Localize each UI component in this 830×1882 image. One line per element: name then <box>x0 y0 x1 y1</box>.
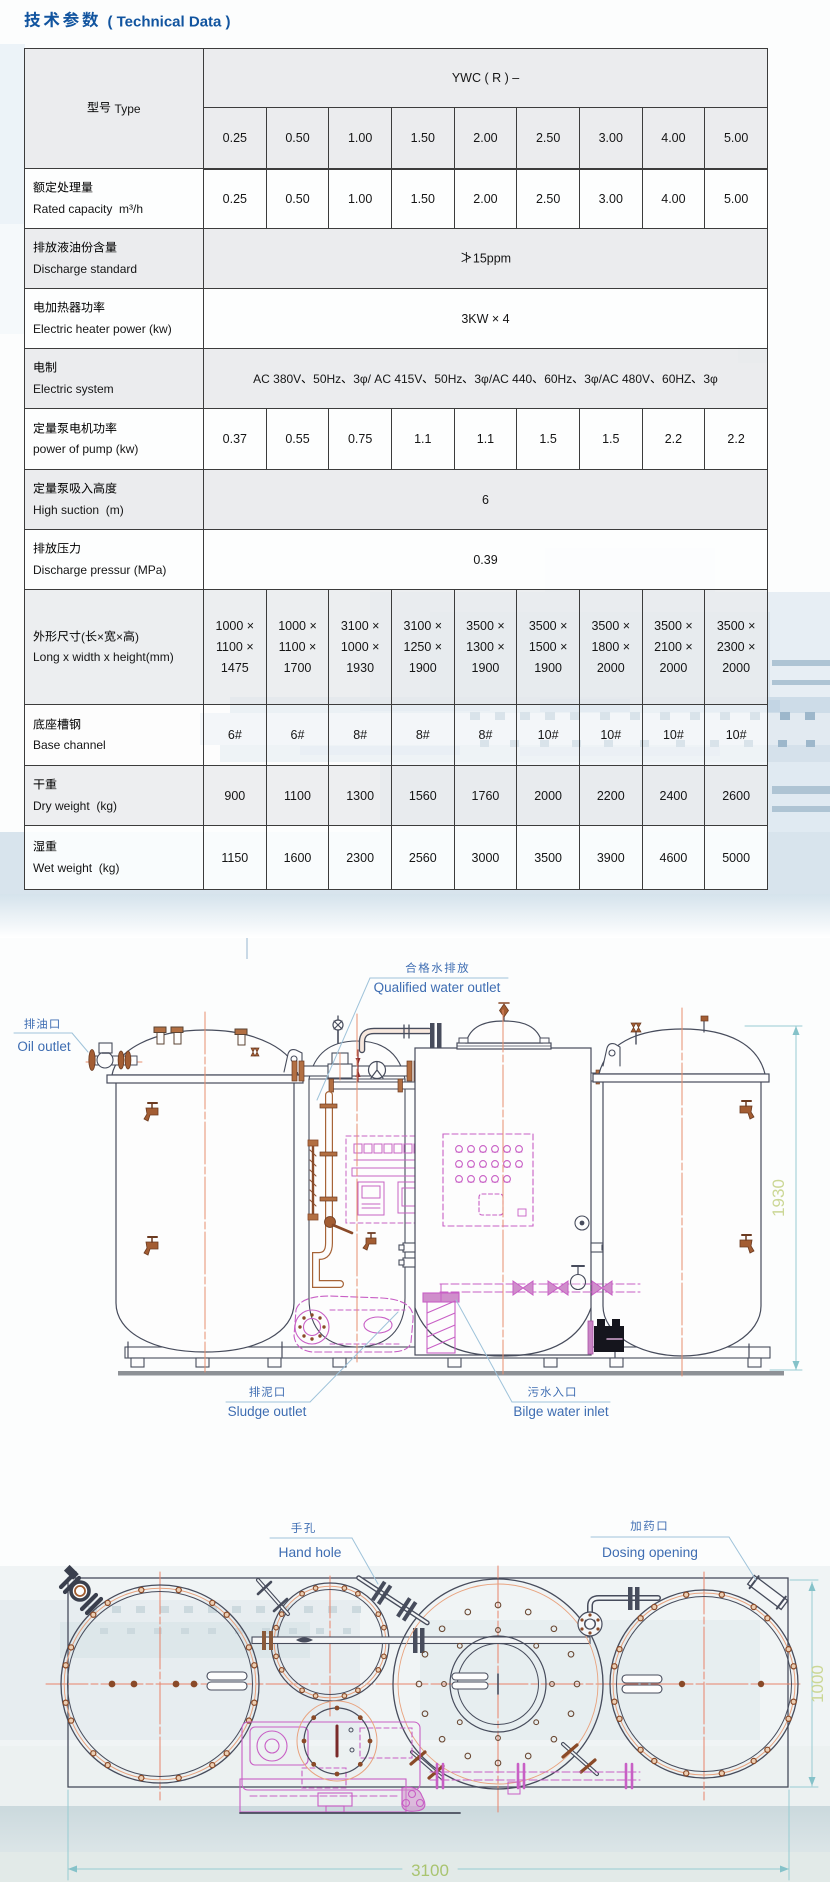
svg-text:Sludge outlet: Sludge outlet <box>228 1404 307 1419</box>
svg-text:Dosing opening: Dosing opening <box>602 1545 698 1560</box>
svg-text:Qualified water outlet: Qualified water outlet <box>374 980 501 995</box>
svg-text:3100: 3100 <box>411 1861 449 1880</box>
svg-text:Oil outlet: Oil outlet <box>17 1039 71 1054</box>
svg-text:Hand hole: Hand hole <box>279 1545 342 1560</box>
svg-text:1930: 1930 <box>769 1179 788 1217</box>
svg-text:1000: 1000 <box>808 1665 827 1703</box>
svg-text:Bilge water inlet: Bilge water inlet <box>513 1404 609 1419</box>
